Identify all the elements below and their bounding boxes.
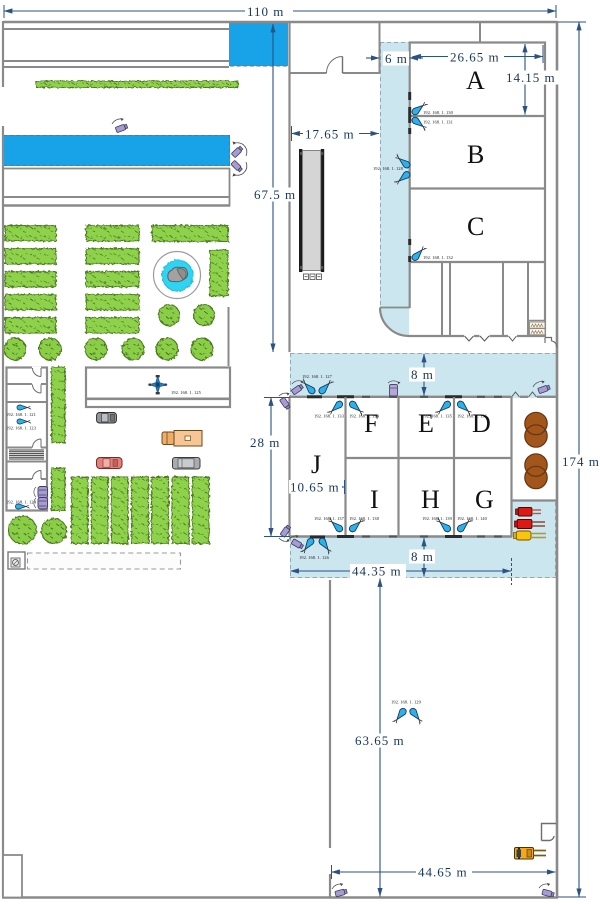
svg-text:J: J	[311, 450, 321, 479]
svg-text:14.15 m: 14.15 m	[506, 70, 556, 85]
svg-text:192. 168. 1. 123: 192. 168. 1. 123	[6, 426, 37, 431]
svg-text:H: H	[421, 485, 440, 514]
svg-text:10.65 m: 10.65 m	[290, 480, 340, 495]
svg-text:192. 168. 1. 128: 192. 168. 1. 128	[373, 166, 404, 171]
svg-text:28 m: 28 m	[250, 435, 280, 450]
svg-text:192. 168. 1. 133: 192. 168. 1. 133	[314, 414, 345, 419]
svg-text:192. 168. 1. 126: 192. 168. 1. 126	[299, 555, 330, 560]
svg-text:192. 168. 1. 132: 192. 168. 1. 132	[423, 255, 454, 260]
svg-text:174 m: 174 m	[562, 454, 600, 469]
svg-text:8 m: 8 m	[411, 549, 434, 564]
svg-text:B: B	[467, 140, 484, 169]
svg-text:192. 168. 1. 139: 192. 168. 1. 139	[422, 516, 453, 521]
svg-text:C: C	[467, 212, 484, 241]
svg-text:26.65 m: 26.65 m	[450, 50, 500, 65]
svg-text:D: D	[472, 409, 491, 438]
svg-text:110 m: 110 m	[247, 4, 284, 19]
svg-text:A: A	[466, 66, 485, 95]
svg-text:192. 168. 1. 140: 192. 168. 1. 140	[457, 516, 488, 521]
svg-text:192. 168. 1. 121: 192. 168. 1. 121	[6, 412, 37, 417]
svg-text:192. 168. 1. 138: 192. 168. 1. 138	[349, 516, 380, 521]
svg-text:6 m: 6 m	[385, 51, 408, 66]
svg-text:E: E	[418, 409, 434, 438]
svg-text:192. 168. 1. 127: 192. 168. 1. 127	[302, 374, 333, 379]
svg-text:44.65 m: 44.65 m	[418, 865, 468, 880]
svg-text:F: F	[364, 409, 378, 438]
svg-text:192. 168. 1. 137: 192. 168. 1. 137	[314, 516, 345, 521]
svg-text:192. 168. 1. 131: 192. 168. 1. 131	[423, 120, 454, 125]
svg-text:17.65 m: 17.65 m	[305, 127, 355, 142]
svg-text:192. 168. 1. 130: 192. 168. 1. 130	[423, 110, 454, 115]
svg-text:192. 168. 1. 125: 192. 168. 1. 125	[171, 390, 202, 395]
svg-text:192. 168. 1. 124: 192. 168. 1. 124	[6, 500, 37, 505]
svg-text:63.65 m: 63.65 m	[355, 733, 405, 748]
svg-text:G: G	[475, 485, 494, 514]
svg-text:8 m: 8 m	[411, 367, 434, 382]
svg-text:192. 168. 1. 129: 192. 168. 1. 129	[391, 700, 422, 705]
svg-text:44.35 m: 44.35 m	[352, 564, 402, 579]
svg-text:I: I	[370, 485, 379, 514]
svg-text:67.5 m: 67.5 m	[254, 187, 296, 202]
